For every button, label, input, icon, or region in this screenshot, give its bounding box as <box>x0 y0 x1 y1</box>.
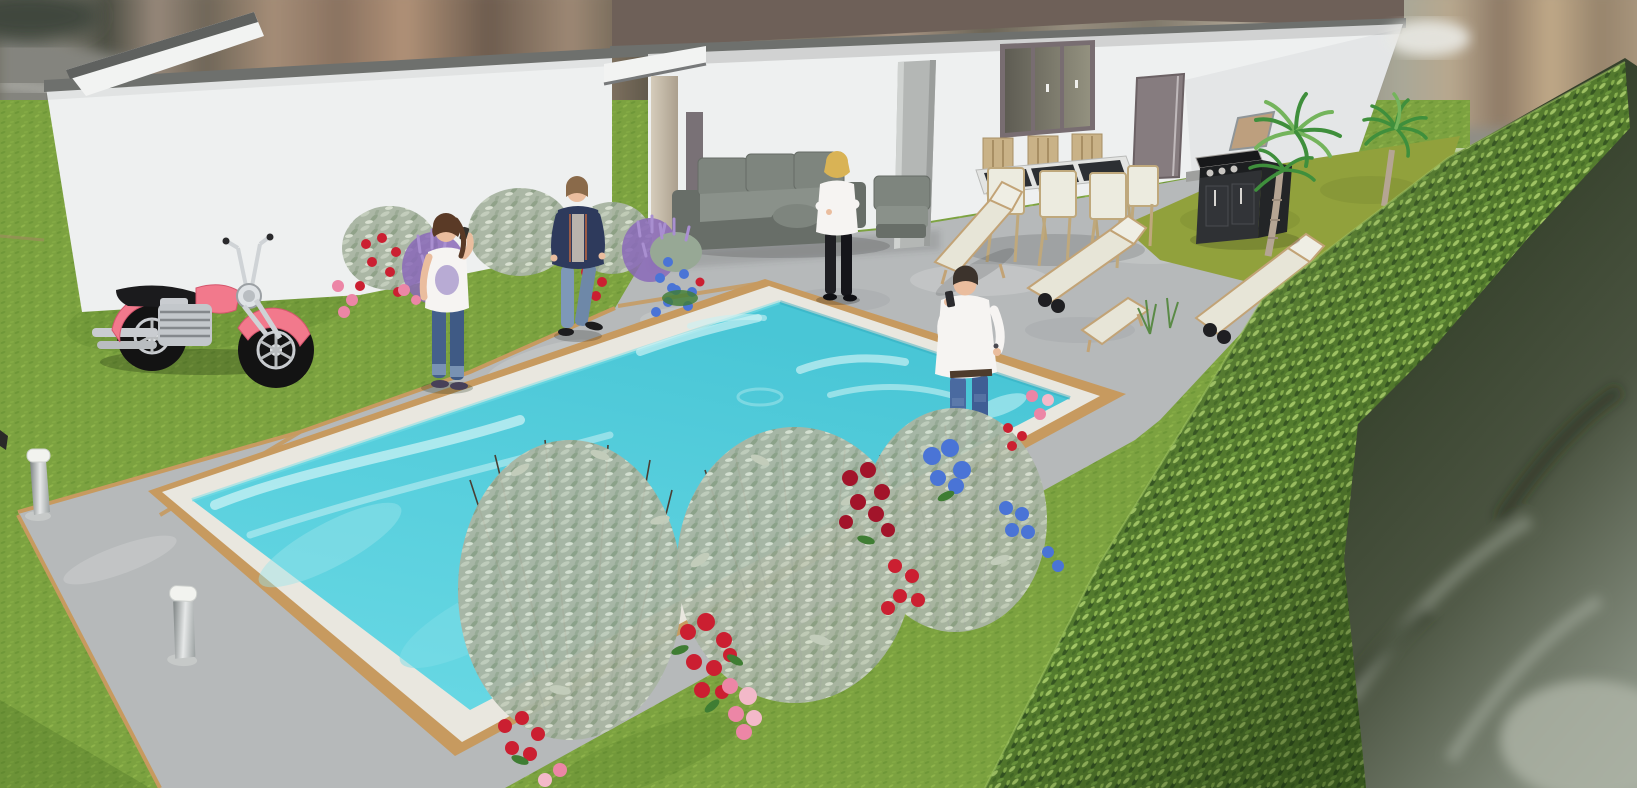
bollard-lamp-head <box>169 585 197 601</box>
window-handle <box>1075 80 1078 88</box>
exhaust-pipe <box>97 341 157 349</box>
sliding-window[interactable] <box>1000 40 1095 138</box>
roof-end-highlight <box>1386 20 1470 56</box>
entry-door[interactable] <box>1133 74 1184 179</box>
side-shelf <box>1186 170 1200 182</box>
tshirt-graphic <box>435 265 459 295</box>
watch <box>994 344 999 349</box>
window-handle <box>1046 84 1049 92</box>
engine <box>158 304 212 346</box>
render-viewport[interactable]: Sunlit 3D architectural rendering of a b… <box>0 0 1637 788</box>
round-ottoman[interactable] <box>770 204 824 238</box>
bollard-lamp-head <box>27 449 50 462</box>
armchair[interactable] <box>874 176 930 238</box>
exhaust-pipe <box>92 328 158 337</box>
tee-under-jacket <box>572 214 584 262</box>
